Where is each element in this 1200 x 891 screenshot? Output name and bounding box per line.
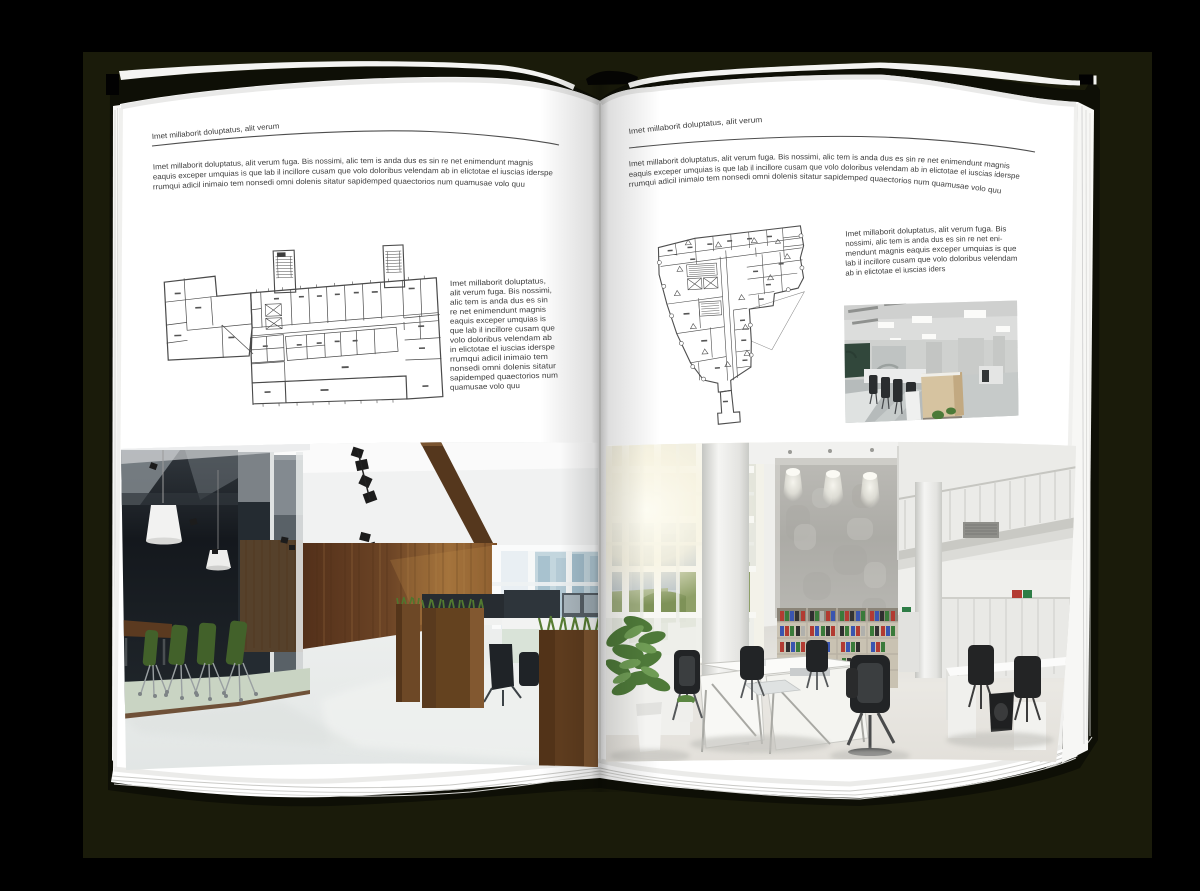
svg-text:quamusae volo quu: quamusae volo quu bbox=[450, 381, 520, 392]
